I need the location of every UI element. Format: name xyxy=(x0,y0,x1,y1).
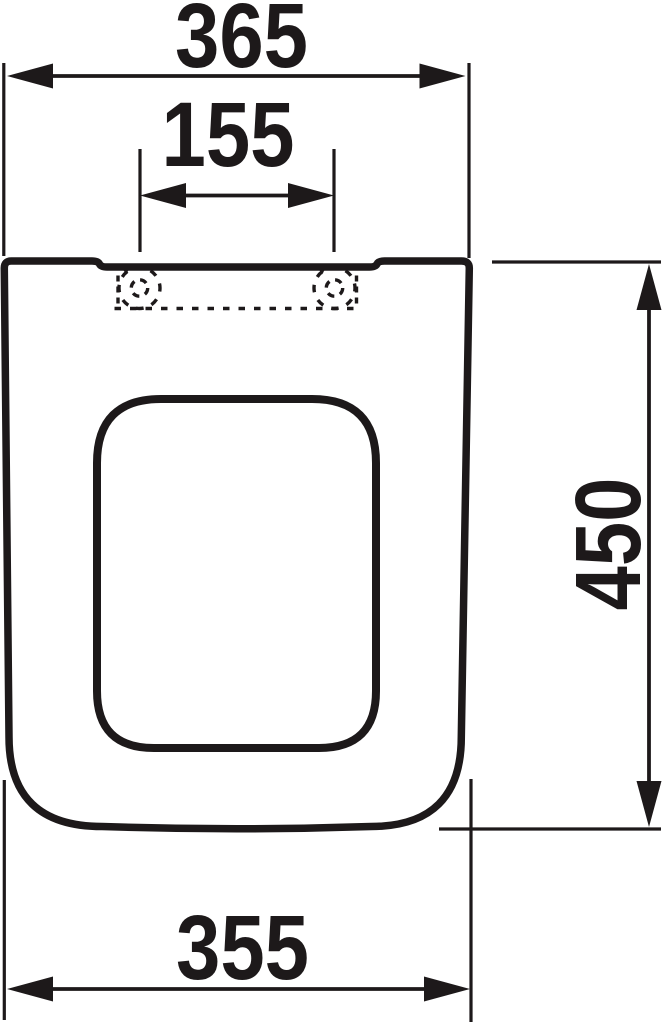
svg-text:155: 155 xyxy=(162,84,295,186)
svg-text:450: 450 xyxy=(556,478,660,611)
svg-text:355: 355 xyxy=(176,897,309,999)
svg-text:365: 365 xyxy=(175,0,308,87)
